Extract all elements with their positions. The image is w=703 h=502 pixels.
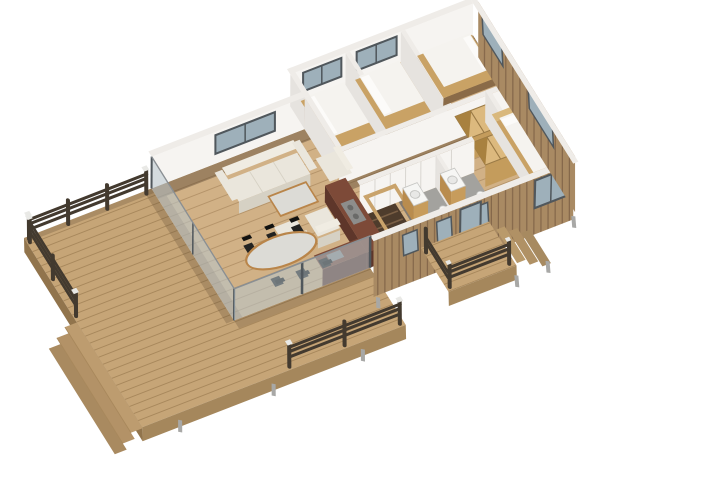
floorplan-screenshot [0,0,703,502]
floorplan-3d-render [0,0,703,502]
